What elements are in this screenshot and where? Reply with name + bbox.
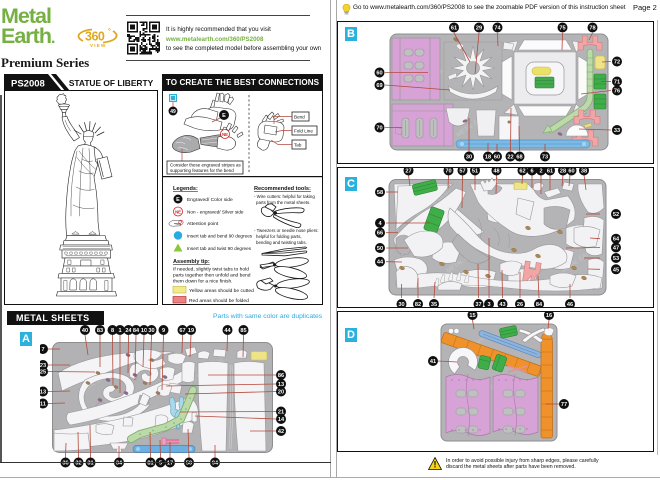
svg-text:19: 19: [188, 328, 194, 334]
svg-text:62: 62: [519, 169, 525, 175]
svg-text:77: 77: [561, 402, 567, 408]
svg-text:Engraved/ Color side: Engraved/ Color side: [187, 197, 233, 203]
svg-text:NE: NE: [175, 209, 181, 214]
svg-text:53: 53: [613, 256, 619, 262]
svg-text:68: 68: [516, 155, 522, 161]
svg-text:60: 60: [568, 169, 574, 175]
svg-text:NE: NE: [222, 132, 228, 137]
svg-text:°: °: [108, 28, 111, 36]
svg-text:28: 28: [560, 169, 566, 175]
svg-text:Yellow areas should be cutted: Yellow areas should be cutted: [189, 288, 254, 294]
svg-text:70: 70: [376, 126, 382, 132]
svg-text:- Tweezers or needle nose plie: - Tweezers or needle nose pliers:: [254, 228, 319, 233]
svg-text:Red areas should be folded: Red areas should be folded: [189, 298, 249, 304]
svg-text:78: 78: [589, 26, 595, 32]
svg-text:Non - engraved/ Silver side: Non - engraved/ Silver side: [187, 210, 244, 215]
svg-text:- Wire cutters: helpful for ta: - Wire cutters: helpful for taking: [254, 194, 315, 199]
svg-text:60: 60: [376, 71, 382, 77]
svg-text:42: 42: [278, 429, 284, 435]
svg-text:VIEW: VIEW: [90, 43, 107, 48]
svg-text:71: 71: [614, 80, 620, 86]
svg-text:parts together then unfold and: parts together then unfold and bend: [173, 273, 251, 279]
svg-text:22: 22: [507, 155, 513, 161]
svg-text:86: 86: [278, 373, 284, 379]
svg-text:Legends:: Legends:: [173, 186, 198, 192]
svg-text:46: 46: [567, 302, 573, 307]
svg-text:Bend: Bend: [294, 114, 305, 119]
svg-text:E: E: [176, 197, 180, 203]
svg-text:Fold Line: Fold Line: [294, 128, 313, 133]
svg-text:STATUE OF LIBERTY: STATUE OF LIBERTY: [69, 78, 154, 88]
svg-text:1: 1: [118, 328, 121, 334]
svg-text:10: 10: [141, 328, 147, 334]
svg-text:Recommended tools:: Recommended tools:: [254, 186, 311, 192]
svg-text:40: 40: [82, 328, 88, 334]
svg-text:14: 14: [278, 417, 285, 423]
svg-text:50: 50: [377, 246, 383, 252]
svg-text:82: 82: [415, 302, 421, 307]
svg-text:helpful for folding parts,: helpful for folding parts,: [256, 234, 302, 239]
svg-text:3: 3: [487, 302, 490, 307]
svg-text:69: 69: [376, 83, 382, 89]
svg-text:E: E: [222, 113, 226, 119]
svg-text:41: 41: [430, 359, 436, 365]
svg-text:bending and twisting tabs.: bending and twisting tabs.: [256, 240, 307, 245]
svg-text:58: 58: [377, 190, 383, 196]
svg-text:30: 30: [398, 302, 404, 307]
svg-text:84: 84: [536, 302, 543, 307]
svg-text:13: 13: [40, 390, 46, 396]
svg-text:360: 360: [85, 30, 105, 44]
svg-text:15: 15: [469, 313, 475, 319]
svg-text:them down for a nice finish.: them down for a nice finish.: [173, 279, 233, 285]
svg-text:PS2008: PS2008: [11, 79, 45, 90]
svg-text:43: 43: [499, 302, 505, 307]
svg-text:29: 29: [476, 26, 482, 32]
svg-text:44: 44: [224, 328, 231, 334]
svg-text:9: 9: [162, 328, 165, 334]
svg-text:73: 73: [542, 155, 548, 161]
svg-text:64: 64: [613, 237, 620, 243]
svg-text:52: 52: [613, 212, 619, 218]
svg-text:51: 51: [472, 169, 478, 175]
svg-text:Tab: Tab: [294, 142, 302, 147]
svg-text:66: 66: [377, 231, 383, 237]
svg-text:84: 84: [133, 328, 140, 334]
svg-text:85: 85: [240, 328, 246, 334]
svg-text:parts from the metal sheets.: parts from the metal sheets.: [256, 200, 310, 205]
svg-text:30: 30: [148, 328, 154, 334]
svg-text:supporting features for the be: supporting features for the bend: [170, 168, 234, 173]
svg-text:18: 18: [485, 155, 491, 161]
svg-text:61: 61: [451, 26, 457, 32]
svg-text:74: 74: [494, 26, 501, 32]
svg-text:37: 37: [475, 302, 481, 307]
svg-text:75: 75: [559, 26, 565, 32]
svg-text:7: 7: [41, 347, 44, 353]
svg-text:Insert tab and twist 90 degree: Insert tab and twist 90 degrees: [187, 246, 252, 251]
svg-text:27: 27: [405, 169, 411, 175]
svg-text:8: 8: [111, 328, 114, 334]
svg-text:61: 61: [547, 169, 553, 175]
svg-text:57: 57: [459, 169, 465, 175]
svg-text:72: 72: [614, 60, 620, 66]
svg-text:Consider these engraved stripe: Consider these engraved stripes as: [170, 163, 242, 168]
svg-text:Assembly tip:: Assembly tip:: [173, 259, 210, 265]
svg-text:70: 70: [445, 169, 451, 175]
svg-text:6: 6: [530, 169, 533, 175]
svg-text:25: 25: [40, 370, 46, 376]
svg-text:48: 48: [493, 169, 499, 175]
svg-text:20: 20: [278, 390, 284, 396]
svg-text:33: 33: [614, 128, 620, 134]
svg-text:Attention point: Attention point: [187, 221, 219, 227]
svg-text:44: 44: [377, 260, 384, 266]
svg-text:49: 49: [170, 109, 176, 115]
svg-text:38: 38: [581, 169, 587, 175]
svg-text:If needed, slightly twist tabs: If needed, slightly twist tabs to hold: [173, 267, 249, 273]
svg-text:45: 45: [613, 267, 619, 273]
svg-text:67: 67: [179, 328, 185, 334]
svg-text:Insert tab and bend 90 degrees: Insert tab and bend 90 degrees: [187, 234, 253, 239]
svg-text:2: 2: [539, 169, 542, 175]
svg-text:76: 76: [614, 89, 620, 95]
svg-text:35: 35: [431, 302, 437, 307]
svg-text:30: 30: [466, 155, 472, 161]
svg-text:26: 26: [517, 302, 523, 307]
svg-text:83: 83: [97, 328, 103, 334]
svg-text:11: 11: [40, 402, 46, 408]
svg-text:16: 16: [546, 313, 552, 319]
svg-text:60: 60: [494, 155, 500, 161]
svg-text:!: !: [434, 460, 437, 470]
svg-text:47: 47: [613, 246, 619, 252]
